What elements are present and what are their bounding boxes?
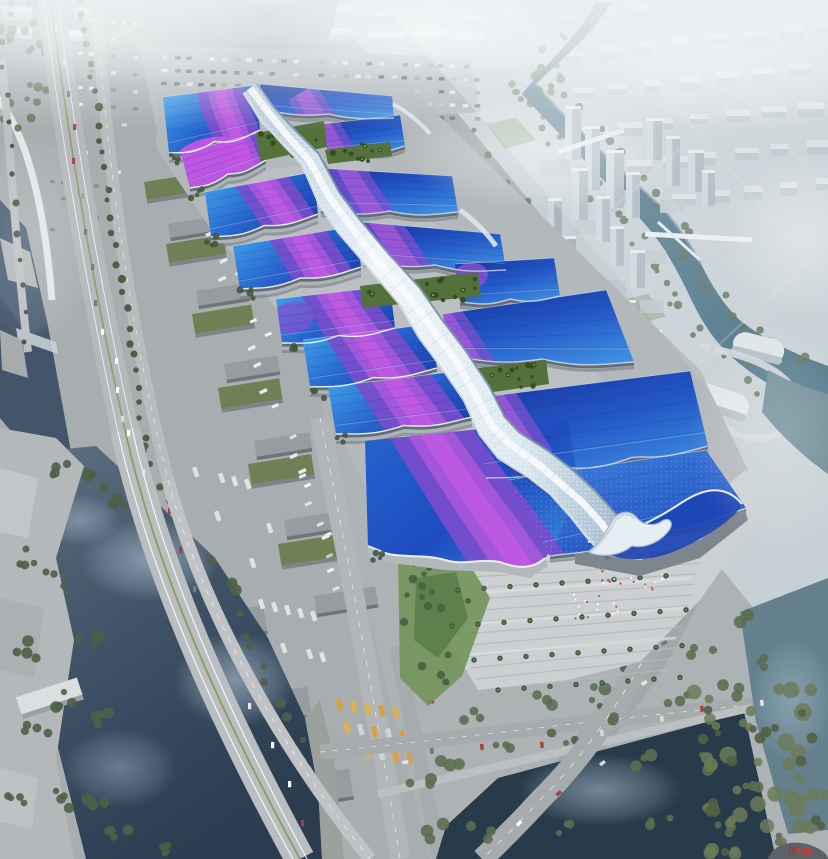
svg-text:D中国: D中国	[788, 846, 811, 857]
